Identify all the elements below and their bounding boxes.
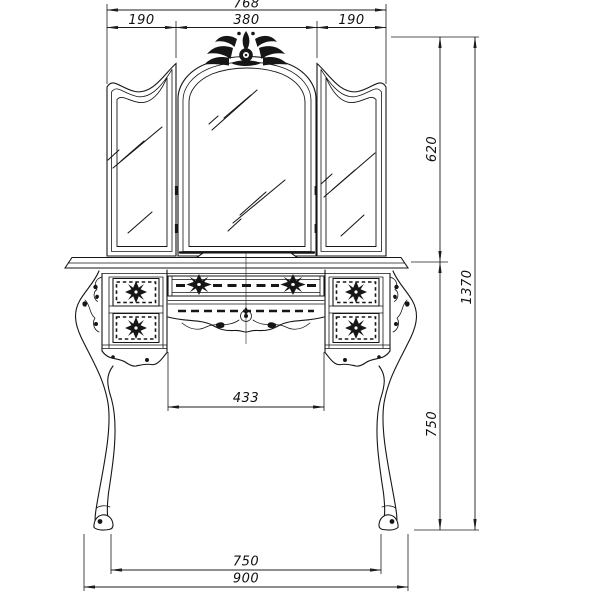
dim-overall-width-label: 768	[233, 0, 259, 12]
dim-center-mirror-label: 380	[233, 13, 259, 28]
dim-left-mirror-label: 190	[128, 13, 154, 28]
crest-ornament	[205, 31, 288, 66]
drawer-rosette-handle	[125, 281, 147, 303]
technical-drawing-page: 768 190 380 190 620 750 1370	[0, 0, 600, 600]
dim-table-height-label: 750	[425, 411, 440, 437]
dim-table-height: 750	[425, 262, 440, 530]
drawer-rosette-handle	[280, 274, 305, 295]
drawer-rosette-handle	[125, 317, 147, 339]
dim-foot-span: 750	[111, 555, 381, 571]
dim-mirror-segments: 190 380 190	[107, 13, 386, 28]
left-pedestal	[93, 270, 167, 366]
right-pedestal	[325, 270, 399, 366]
dim-overall-height: 1370	[460, 37, 475, 530]
pedestal-ear-carving	[93, 277, 102, 302]
dim-knee-space-label: 433	[233, 391, 259, 406]
dressing-table-elevation-drawing: 768 190 380 190 620 750 1370	[0, 0, 600, 600]
knee-carving	[393, 300, 410, 332]
dim-mirror-height: 620	[425, 37, 440, 262]
drawer-rosette-handle	[345, 281, 367, 303]
dim-base-width: 900	[84, 572, 408, 588]
right-mirror-panel	[317, 64, 386, 257]
dim-base-width-label: 900	[233, 572, 259, 587]
left-mirror-panel	[107, 64, 176, 257]
dim-knee-space: 433	[168, 391, 324, 407]
tabletop	[65, 258, 408, 274]
dim-overall-width: 768	[107, 0, 386, 12]
center-mirror-panel	[178, 57, 316, 259]
trifold-mirror	[107, 31, 386, 258]
drawer-rosette-handle	[186, 274, 211, 295]
dim-mirror-height-label: 620	[425, 136, 440, 162]
dim-right-mirror-label: 190	[338, 13, 364, 28]
dim-overall-height-label: 1370	[460, 269, 475, 304]
dim-foot-span-label: 750	[233, 555, 259, 570]
drawer-rosette-handle	[345, 317, 367, 339]
knee-carving	[82, 300, 99, 332]
pedestal-ear-carving	[390, 277, 399, 302]
